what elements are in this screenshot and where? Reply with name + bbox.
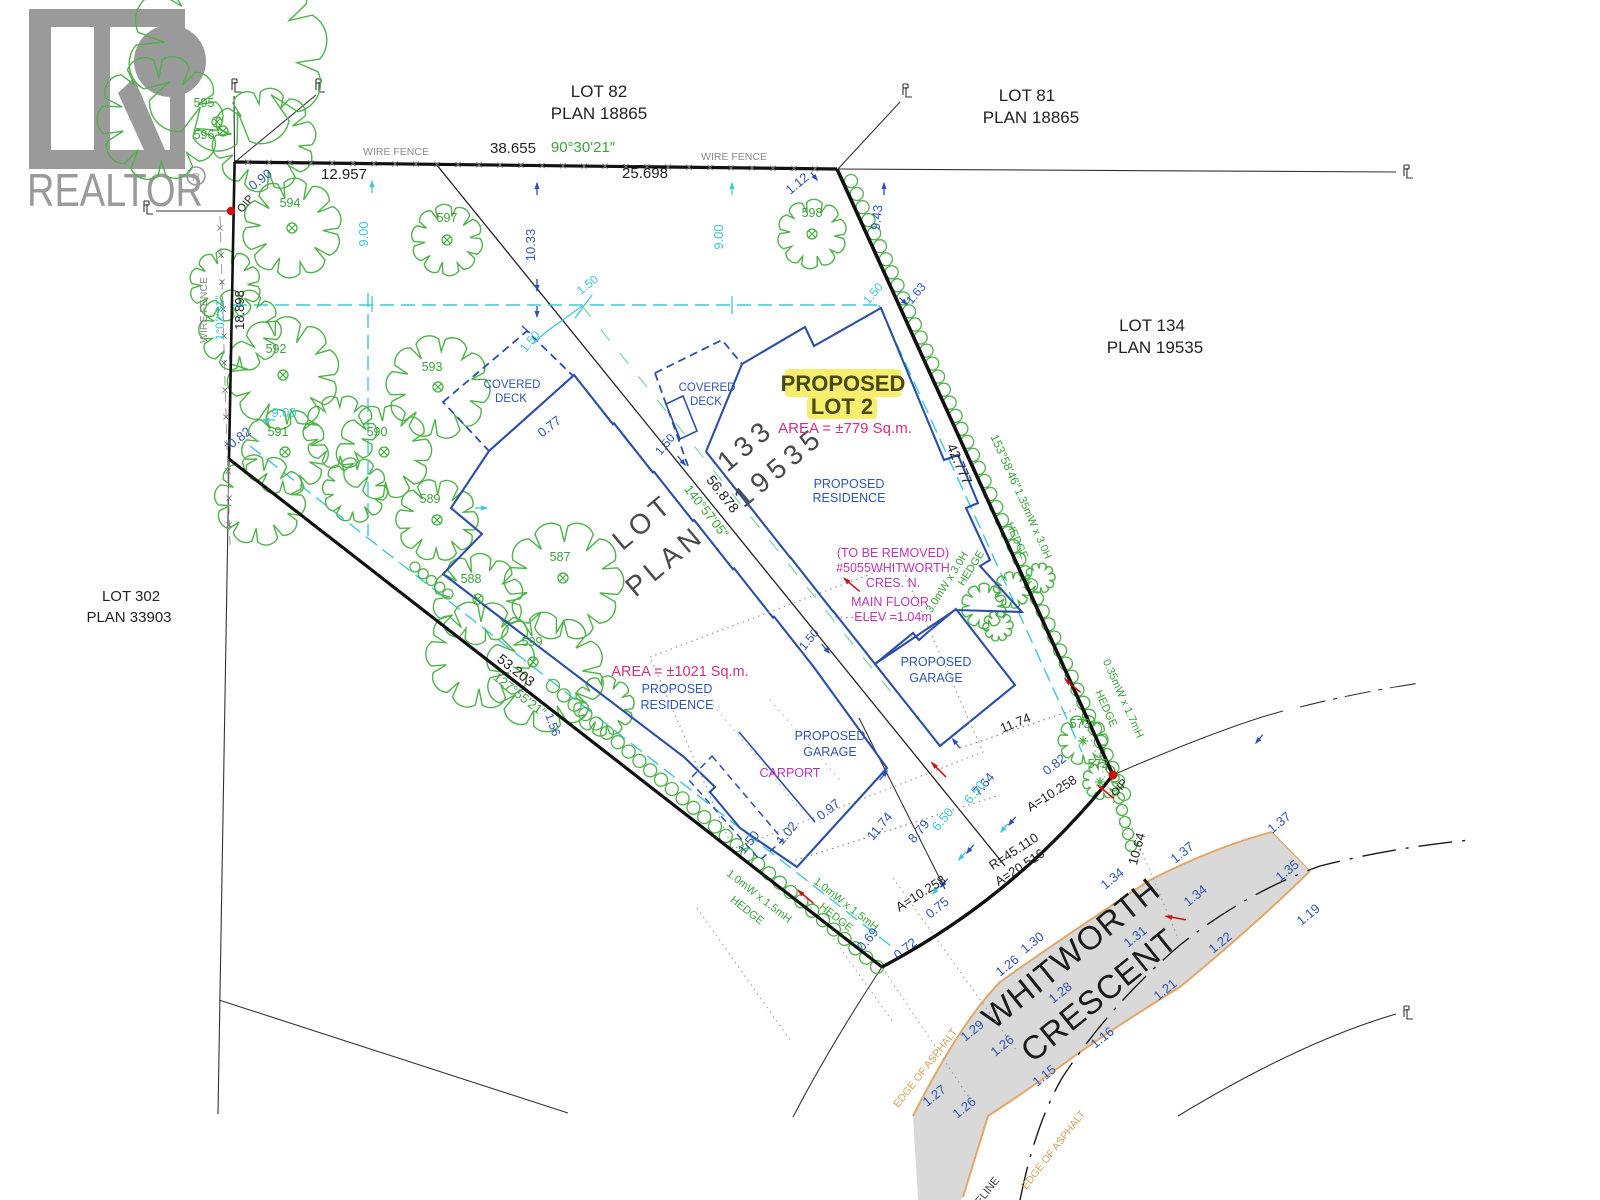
svg-text:9.00: 9.00 [271, 405, 296, 420]
svg-text:589: 589 [420, 492, 441, 506]
svg-text:90°30'21″: 90°30'21″ [551, 139, 616, 156]
svg-text:18.898: 18.898 [232, 290, 247, 330]
svg-text:REALTOR: REALTOR [27, 164, 203, 216]
svg-text:592: 592 [266, 342, 287, 356]
svg-text:PROPOSED: PROPOSED [795, 729, 866, 743]
svg-text:9.00: 9.00 [711, 224, 726, 249]
svg-text:10.33: 10.33 [523, 229, 538, 262]
svg-text:WIRE FENCE: WIRE FENCE [198, 277, 210, 343]
svg-text:597: 597 [437, 211, 458, 225]
svg-text:MAIN FLOOR: MAIN FLOOR [851, 595, 929, 609]
svg-text:573: 573 [1070, 717, 1091, 731]
svg-text:LOT 81: LOT 81 [999, 86, 1055, 105]
svg-text:PLAN 18865: PLAN 18865 [983, 108, 1079, 127]
svg-text:25.698: 25.698 [622, 165, 668, 182]
svg-text:LOT 82: LOT 82 [571, 82, 627, 101]
svg-text:599: 599 [522, 635, 543, 649]
svg-text:9.00: 9.00 [356, 221, 371, 246]
svg-text:PROPOSED: PROPOSED [901, 655, 972, 669]
svg-text:CRES. N.: CRES. N. [866, 576, 920, 590]
svg-text:LOT 2: LOT 2 [811, 394, 873, 419]
svg-text:ELEV =1.04m: ELEV =1.04m [854, 610, 931, 624]
svg-text:CARPORT: CARPORT [760, 766, 821, 780]
svg-text:588: 588 [461, 572, 482, 586]
svg-text:COVERED: COVERED [679, 382, 736, 394]
svg-text:AREA = ±779 Sq.m.: AREA = ±779 Sq.m. [778, 420, 912, 437]
svg-text:PLAN 18865: PLAN 18865 [551, 104, 647, 123]
svg-text:590: 590 [367, 425, 388, 439]
svg-text:LOT 134: LOT 134 [1119, 316, 1185, 335]
svg-text:RESIDENCE: RESIDENCE [641, 698, 714, 712]
svg-text:DECK: DECK [495, 393, 527, 405]
svg-text:COVERED: COVERED [484, 379, 541, 391]
svg-text:(TO BE REMOVED): (TO BE REMOVED) [837, 546, 949, 560]
svg-text:PROPOSED: PROPOSED [642, 682, 713, 696]
svg-text:PROPOSED: PROPOSED [781, 371, 906, 396]
svg-text:587: 587 [550, 550, 571, 564]
svg-text:595: 595 [194, 96, 215, 110]
svg-text:591: 591 [268, 425, 289, 439]
svg-text:DECK: DECK [690, 396, 722, 408]
svg-text:R: R [192, 172, 200, 184]
svg-text:AREA = ±1021 Sq.m.: AREA = ±1021 Sq.m. [611, 664, 748, 680]
svg-text:598: 598 [802, 206, 823, 220]
svg-text:PLAN 33903: PLAN 33903 [86, 609, 171, 626]
svg-text:PROPOSED: PROPOSED [814, 477, 885, 491]
svg-text:WIRE FENCE: WIRE FENCE [363, 146, 429, 158]
svg-text:LOT 302: LOT 302 [102, 588, 160, 605]
svg-text:GARAGE: GARAGE [909, 671, 963, 685]
svg-text:593: 593 [422, 360, 443, 374]
svg-text:12.957: 12.957 [321, 166, 367, 183]
svg-text:9.43: 9.43 [868, 204, 886, 231]
svg-text:#5055WHITWORTH: #5055WHITWORTH [836, 561, 950, 575]
svg-text:WIRE FENCE: WIRE FENCE [701, 151, 767, 163]
svg-text:572: 572 [1088, 757, 1109, 771]
svg-text:1°02'31″: 1°02'31″ [213, 295, 227, 340]
svg-text:GARAGE: GARAGE [803, 745, 857, 759]
svg-text:PLAN 19535: PLAN 19535 [1107, 338, 1203, 357]
svg-text:596: 596 [194, 128, 215, 142]
svg-text:RESIDENCE: RESIDENCE [813, 491, 886, 505]
svg-text:38.655: 38.655 [490, 140, 536, 157]
svg-text:594: 594 [280, 196, 301, 210]
